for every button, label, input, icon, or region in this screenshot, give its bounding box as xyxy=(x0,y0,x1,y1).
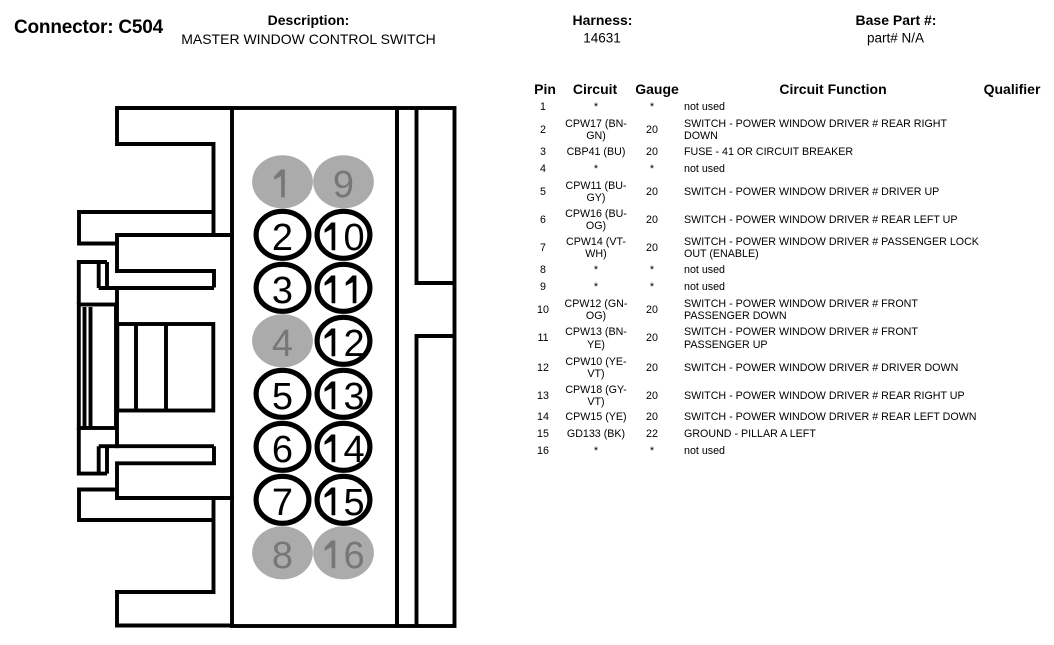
svg-text:7: 7 xyxy=(272,482,293,524)
svg-text:8: 8 xyxy=(272,535,293,577)
svg-text:6: 6 xyxy=(343,535,364,577)
svg-text:5: 5 xyxy=(343,482,364,524)
